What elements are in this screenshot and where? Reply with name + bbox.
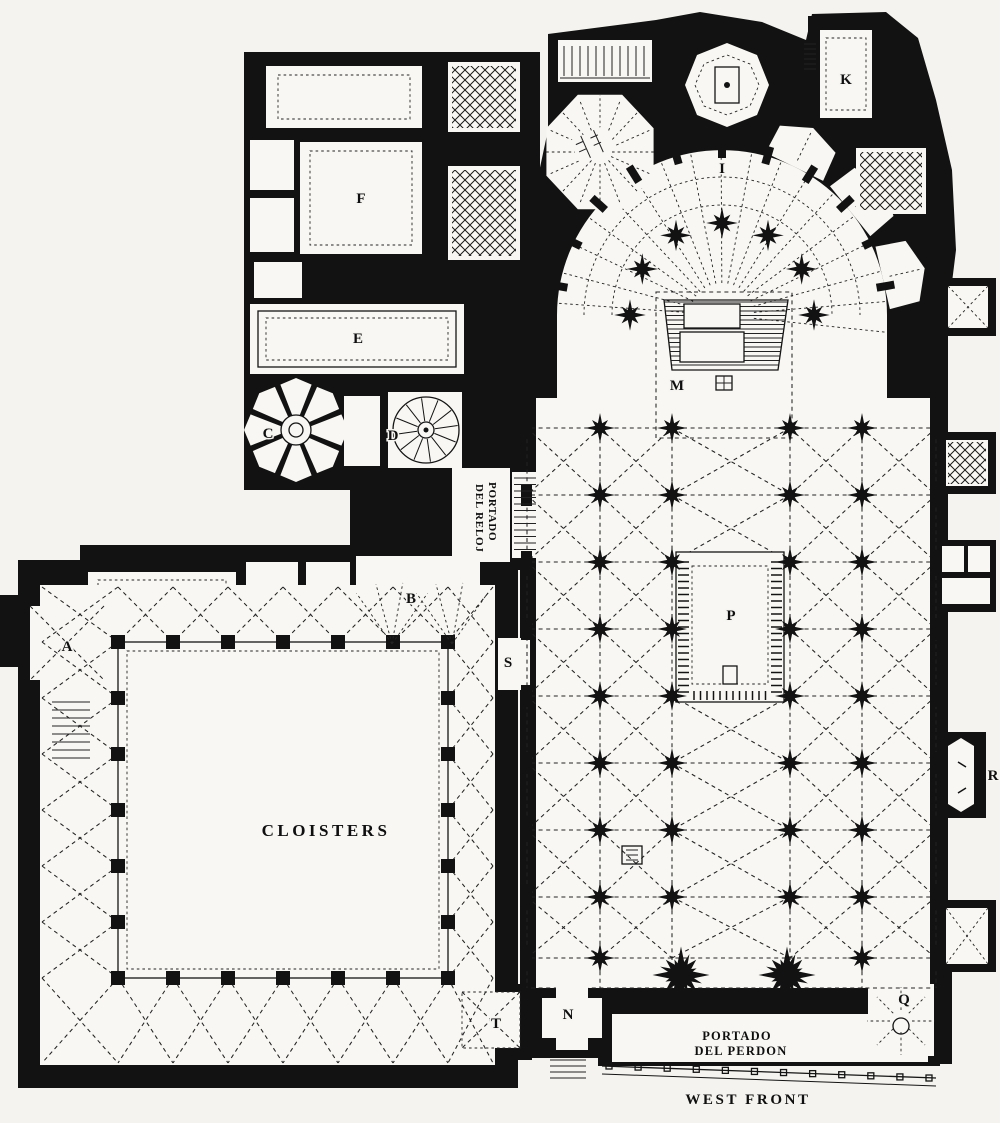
floor-plan-engraving: CLOISTERS PORTADO DEL PERDON WEST FRONT … [0,0,1000,1123]
label-letter-b: B [406,591,416,607]
label-cloisters: CLOISTERS [262,821,391,840]
door-r-lozenge [948,738,974,812]
right-chapel-2-vault [948,442,986,484]
cloister-pier [221,971,235,985]
lattice-chapel-3-vault [860,152,922,210]
label-letter-a: A [62,639,73,655]
cloister-pier [441,803,455,817]
altar-upper [684,304,740,328]
label-letter-d: D [388,428,399,444]
label-letter-k: K [840,72,852,88]
wall-pier [521,484,532,506]
cloister-pier [111,635,125,649]
label-reloj-2: DEL RELOJ [473,484,485,553]
cloister-pier [441,971,455,985]
label-letter-s: S [504,655,512,671]
chapel-a-bump [0,595,34,667]
room-nw-2 [250,140,294,190]
altar-lower [680,332,744,362]
wall-pier [930,886,941,908]
lattice-chapel-2-vault [452,170,516,256]
cloister-pier [111,803,125,817]
fan-vault-chapel [546,95,654,210]
wall-pier [521,947,532,969]
cloister-pier [111,747,125,761]
label-letter-c: C [263,426,274,442]
label-letter-i: I [719,161,725,177]
wall-pier [521,417,532,439]
label-letter-f: F [356,191,365,207]
wheel-room-d [388,392,462,468]
cloister-garth [118,642,448,978]
wall-pier [930,685,941,707]
label-letter-t: T [491,1016,501,1032]
label-letter-q: Q [898,992,910,1008]
right-room-3 [942,578,990,604]
cloister-pier [331,971,345,985]
cloister-pier [166,971,180,985]
west-front-steps [602,1063,936,1086]
octagon-boss [724,82,730,88]
vestibule-cd [344,396,380,466]
lattice-chapel-1-vault [452,66,516,128]
room-nw-4 [254,262,302,298]
cloister-pier [441,691,455,705]
cloister-pier [441,915,455,929]
cloister-pier [441,747,455,761]
wall-pier [930,551,941,573]
wall-pier [930,618,941,640]
wall-pier [521,551,532,573]
wall-pier [521,819,532,841]
label-letter-r: R [988,768,999,784]
wall-pier [521,752,532,774]
choir-enclosure [676,552,784,702]
wall-pier [930,417,941,439]
label-letter-n: N [563,1007,574,1023]
wall-pier [930,484,941,506]
right-room-2 [968,546,990,572]
wall-pier [930,819,941,841]
stair-room [48,698,92,766]
cloister-pier [276,635,290,649]
wall-pier [930,947,941,969]
cloister-pier [111,859,125,873]
engraving-page: CLOISTERS PORTADO DEL PERDON WEST FRONT … [0,0,1000,1123]
label-perdon-2: DEL PERDON [695,1044,788,1058]
label-letter-e: E [353,331,363,347]
label-reloj-1: PORTADO [486,482,498,541]
label-letter-m: M [670,378,684,394]
door-s-gap [498,638,530,690]
cloister-pier [111,691,125,705]
cloister-pier [166,635,180,649]
wheel-axle [424,428,429,433]
ambulatory-pier [718,140,726,158]
label-letter-p: P [726,608,735,624]
cloister-pier [111,915,125,929]
wall-pier [521,618,532,640]
room-nw-3 [250,198,294,252]
cloister-pier [111,971,125,985]
cloister-pier [331,635,345,649]
cloister-pier [441,859,455,873]
right-room-1 [942,546,964,572]
label-west-front: WEST FRONT [685,1092,810,1108]
wall-pier [930,752,941,774]
cloister-pier [276,971,290,985]
cloister-pier [386,971,400,985]
cloister-pier [221,635,235,649]
chapter-octagon-c [244,378,348,482]
wall-pier [521,685,532,707]
wall-pier [521,886,532,908]
label-perdon-1: PORTADO [702,1029,772,1043]
